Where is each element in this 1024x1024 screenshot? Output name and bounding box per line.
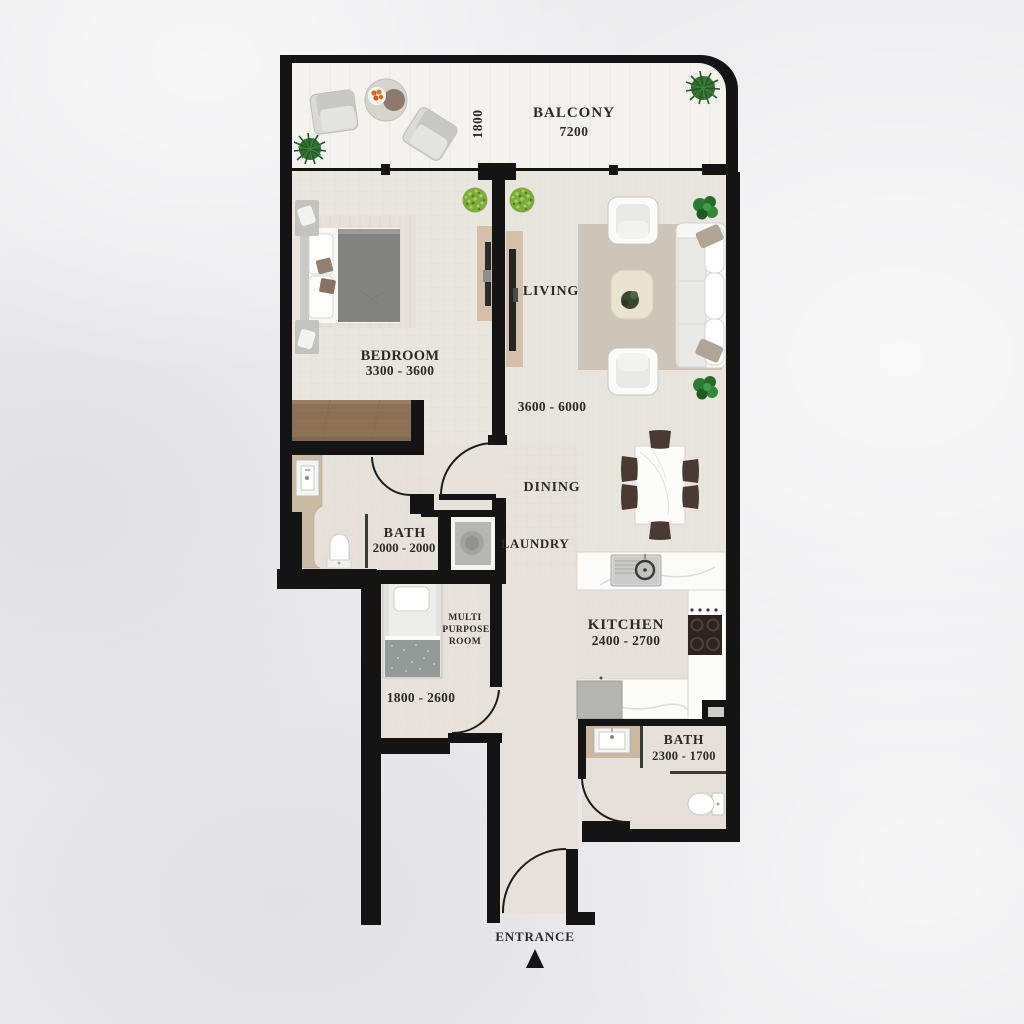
svg-text:PURPOSE: PURPOSE [442,625,489,635]
svg-text:LAUNDRY: LAUNDRY [501,536,570,551]
svg-text:BATH: BATH [664,732,704,747]
svg-text:2000 - 2000: 2000 - 2000 [373,540,436,555]
svg-text:1800: 1800 [470,110,485,139]
svg-text:2400 - 2700: 2400 - 2700 [592,633,661,648]
svg-text:ENTRANCE: ENTRANCE [495,929,574,944]
svg-text:BEDROOM: BEDROOM [361,348,440,364]
svg-text:MULTI: MULTI [448,613,481,623]
svg-text:DINING: DINING [524,480,581,495]
svg-text:BALCONY: BALCONY [533,105,615,121]
svg-text:3300 - 3600: 3300 - 3600 [366,363,435,378]
svg-text:LIVING: LIVING [523,284,579,299]
svg-text:3600 - 6000: 3600 - 6000 [518,399,587,414]
svg-text:2300 - 1700: 2300 - 1700 [652,749,716,763]
svg-text:BATH: BATH [384,526,427,541]
svg-text:1800 - 2600: 1800 - 2600 [387,690,456,705]
svg-text:ROOM: ROOM [449,637,481,647]
svg-text:KITCHEN: KITCHEN [588,617,664,633]
svg-text:7200: 7200 [560,124,589,139]
